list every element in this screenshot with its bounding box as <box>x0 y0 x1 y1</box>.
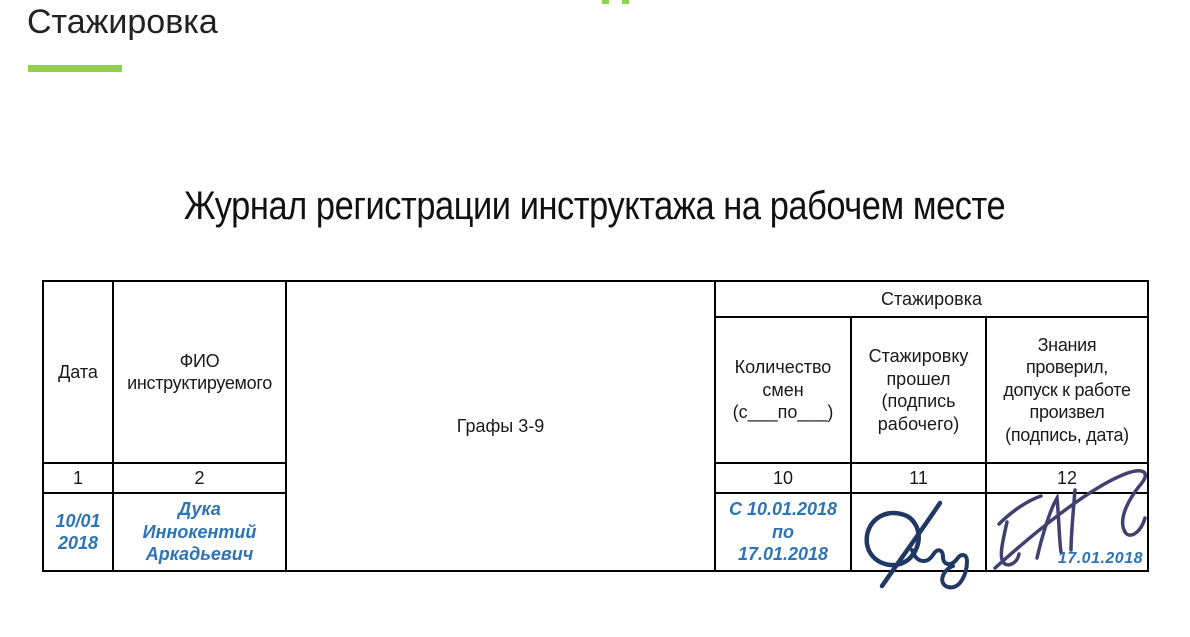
document-heading: Журнал регистрации инструктажа на рабоче… <box>184 184 1005 229</box>
instruction-journal-table: Дата ФИО инструктируемого Графы 3-9 Стаж… <box>42 280 1149 572</box>
column-number-11: 11 <box>851 463 986 493</box>
entry-approval-date: 17.01.2018 <box>1058 549 1143 569</box>
header-knowledge-checked: Знания проверил, допуск к работе произве… <box>986 317 1148 463</box>
group-header-internship: Стажировка <box>715 281 1148 317</box>
column-number-1: 1 <box>43 463 113 493</box>
cropped-green-text-fragment <box>602 0 609 4</box>
entry-shifts-period: С 10.01.2018 по 17.01.2018 <box>715 493 851 571</box>
page-title: Стажировка <box>27 2 218 43</box>
entry-approver-signature-cell: 17.01.2018 <box>986 493 1148 571</box>
entry-date: 10/01 2018 <box>43 493 113 571</box>
cropped-green-text-fragment <box>622 0 629 4</box>
header-name: ФИО инструктируемого <box>113 281 286 463</box>
column-number-2: 2 <box>113 463 286 493</box>
header-shifts-count: Количество смен (с___по___) <box>715 317 851 463</box>
column-number-10: 10 <box>715 463 851 493</box>
merged-cell-grafy-3-9: Графы 3-9 <box>286 281 715 571</box>
header-date: Дата <box>43 281 113 463</box>
worker-signature-icon <box>852 498 987 594</box>
entry-instructed-person-name: Дука Иннокентий Аркадьевич <box>113 493 286 571</box>
document-heading-wrap: Журнал регистрации инструктажа на рабоче… <box>0 184 1190 229</box>
header-internship-passed: Стажировку прошел (подпись рабочего) <box>851 317 986 463</box>
entry-worker-signature-cell <box>851 493 986 571</box>
green-accent-underline <box>28 65 122 72</box>
